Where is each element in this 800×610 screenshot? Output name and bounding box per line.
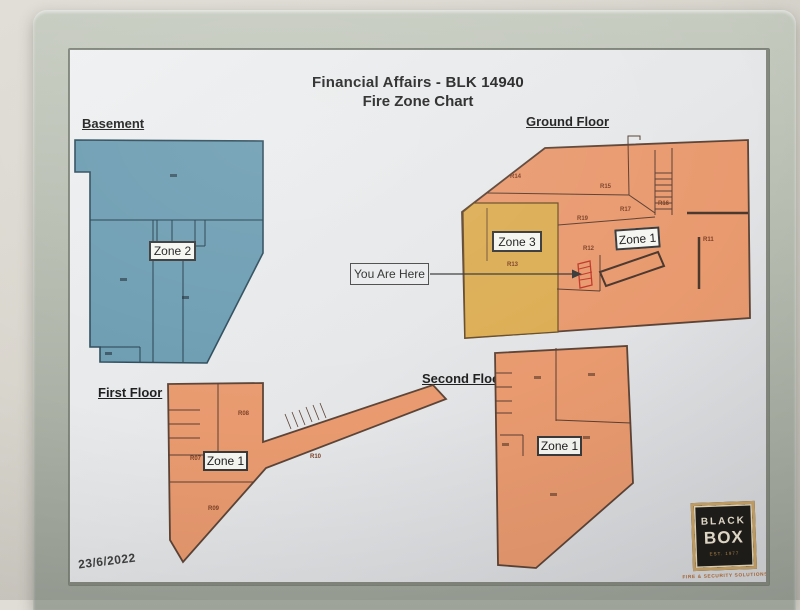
room-label-r15: R15: [600, 184, 611, 190]
blackbox-logo-square: BLACK BOX EST. 1977: [691, 501, 757, 571]
second-floor-outline: [495, 346, 633, 568]
zone-1-ground-badge: Zone 1: [614, 226, 660, 250]
logo-est-text: EST. 1977: [709, 550, 739, 556]
logo-word-black: BLACK: [701, 515, 746, 528]
you-are-here-box: You Are Here: [350, 263, 429, 285]
basement-label: Basement: [82, 116, 144, 131]
zone-1-first-badge: Zone 1: [203, 451, 248, 471]
poster-title: Financial Affairs - BLK 14940: [70, 74, 766, 91]
room-label-r19: R19: [577, 216, 588, 222]
second-floor-plan: [490, 343, 642, 578]
room-label-r09: R09: [208, 506, 219, 512]
zone-3-badge: Zone 3: [492, 231, 542, 252]
logo-tagline: FIRE & SECURITY SOLUTIONS: [675, 572, 766, 580]
room-label-r12: R12: [583, 246, 594, 252]
snap-frame: Financial Affairs - BLK 14940 Fire Zone …: [33, 10, 796, 610]
poster-subtitle: Fire Zone Chart: [70, 93, 766, 110]
room-label-r13: R13: [507, 262, 518, 268]
room-label-r11: R11: [703, 237, 714, 243]
room-label-r17: R17: [620, 207, 631, 213]
blackbox-logo: BLACK BOX EST. 1977 FIRE & SECURITY SOLU…: [673, 500, 766, 580]
room-label-r10: R10: [310, 454, 321, 460]
room-label-r14: R14: [510, 174, 521, 180]
fire-zone-chart-poster: Financial Affairs - BLK 14940 Fire Zone …: [70, 50, 766, 582]
ground-floor-label: Ground Floor: [526, 114, 609, 129]
zone-2-badge: Zone 2: [149, 241, 196, 261]
room-label-r07: R07: [190, 456, 201, 462]
room-label-r16: R16: [658, 201, 669, 207]
zone3-area: [463, 203, 558, 338]
revision-date: 23/6/2022: [77, 551, 136, 572]
first-floor-plan: [165, 380, 457, 582]
room-label-r08: R08: [238, 411, 249, 417]
logo-word-box: BOX: [704, 527, 745, 548]
zone-1-second-badge: Zone 1: [537, 436, 582, 456]
